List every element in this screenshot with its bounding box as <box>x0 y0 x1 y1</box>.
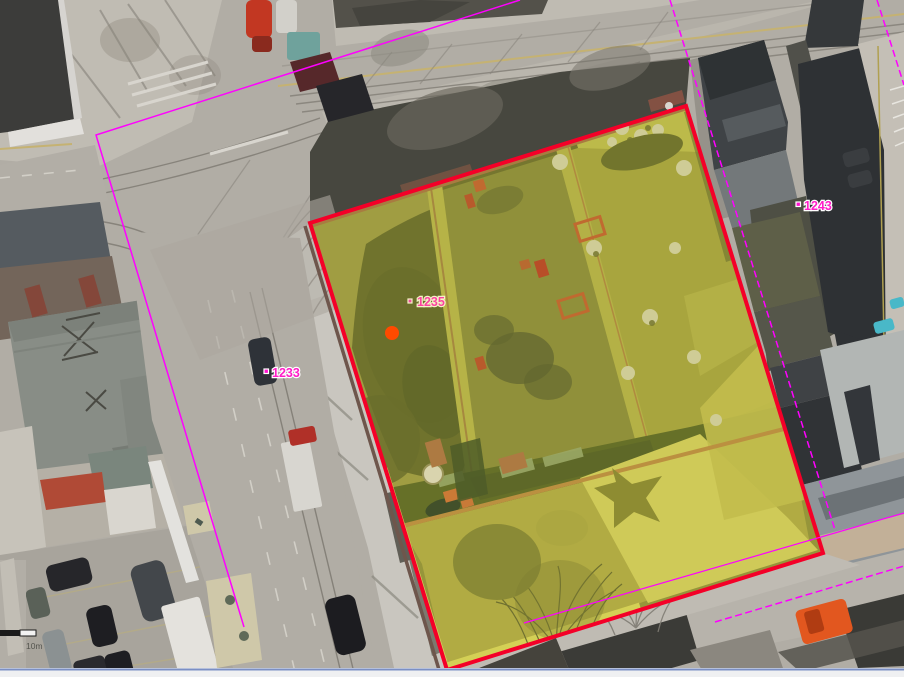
svg-text:1243: 1243 <box>804 199 832 213</box>
svg-text:1235: 1235 <box>417 295 445 309</box>
svg-text:10m: 10m <box>26 641 43 651</box>
svg-text:1233: 1233 <box>272 366 300 380</box>
